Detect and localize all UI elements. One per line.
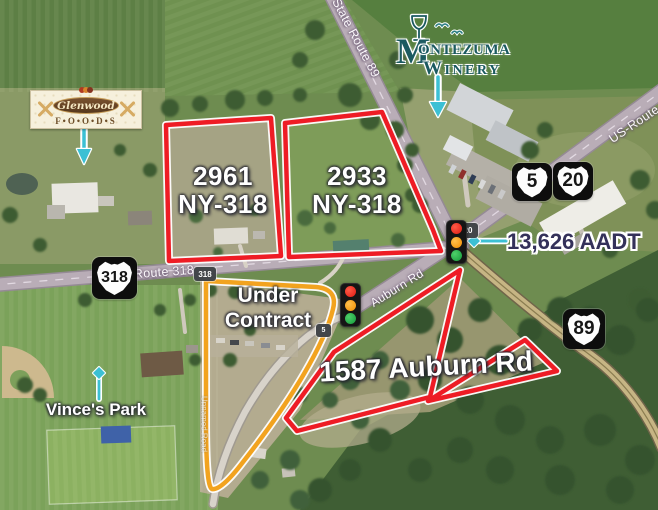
parcel-2933-route: NY-318	[312, 190, 402, 218]
glenwood-foods-logo: Glenwood F•O•O•D•S	[30, 90, 142, 129]
shield-318-number: 318	[101, 269, 128, 287]
aerial-map: State Route 89 US-Route Route 318 Auburn…	[0, 0, 658, 510]
fruit-dark	[87, 87, 93, 93]
route-shield-318: 318	[92, 257, 137, 299]
glenwood-name: Glenwood	[57, 100, 115, 112]
shield-5-small-number: 5	[322, 327, 326, 334]
green-light	[345, 313, 356, 324]
parcel-label-2933: 2933 NY-318	[312, 162, 402, 218]
parcel-2961-number: 2961	[178, 162, 268, 190]
montezuma-name-line2: WINERY	[423, 58, 502, 80]
glenwood-arrow-icon	[77, 128, 91, 164]
shield-89-number: 89	[573, 318, 594, 340]
traffic-count-label: 13,626 AADT	[507, 229, 641, 255]
shield-20-number: 20	[562, 170, 583, 192]
route-shield-5: 5	[512, 163, 552, 201]
parcel-label-under-contract: Under Contract	[225, 283, 311, 333]
park-label: Vince's Park	[46, 400, 146, 420]
glenwood-foods-text: F•O•O•D•S	[31, 116, 141, 126]
parcel-2961-route: NY-318	[178, 190, 268, 218]
parcel-label-2961: 2961 NY-318	[178, 162, 268, 218]
shield-318-small-number: 318	[198, 270, 211, 279]
shield-5-number: 5	[527, 171, 538, 193]
route-shield-89: 89	[563, 309, 605, 349]
route-shield-20: 20	[553, 162, 593, 200]
under-contract-line1: Under	[225, 283, 311, 308]
road-label-local-road: Unnamed Road	[200, 396, 209, 452]
under-contract-line2: Contract	[225, 308, 311, 333]
montezuma-name-line1: ONTEZUMA	[418, 42, 510, 59]
red-light	[451, 223, 462, 234]
glenwood-name-oval: Glenwood	[53, 97, 119, 114]
vince-park-leader-icon	[93, 367, 105, 399]
produce-basket-icon	[80, 87, 92, 93]
red-light	[345, 286, 356, 297]
amber-light	[451, 237, 462, 248]
amber-light	[345, 300, 356, 311]
montezuma-winery-logo: M ONTEZUMA WINERY	[392, 6, 516, 84]
route-shield-5-small: 5	[316, 324, 331, 337]
annotation-overlay	[0, 0, 658, 510]
parcel-2933-number: 2933	[312, 162, 402, 190]
traffic-light-icon-secondary	[340, 283, 361, 327]
green-light	[451, 250, 462, 261]
route-shield-318-small: 318	[194, 267, 216, 281]
traffic-light-icon-main	[446, 220, 467, 264]
